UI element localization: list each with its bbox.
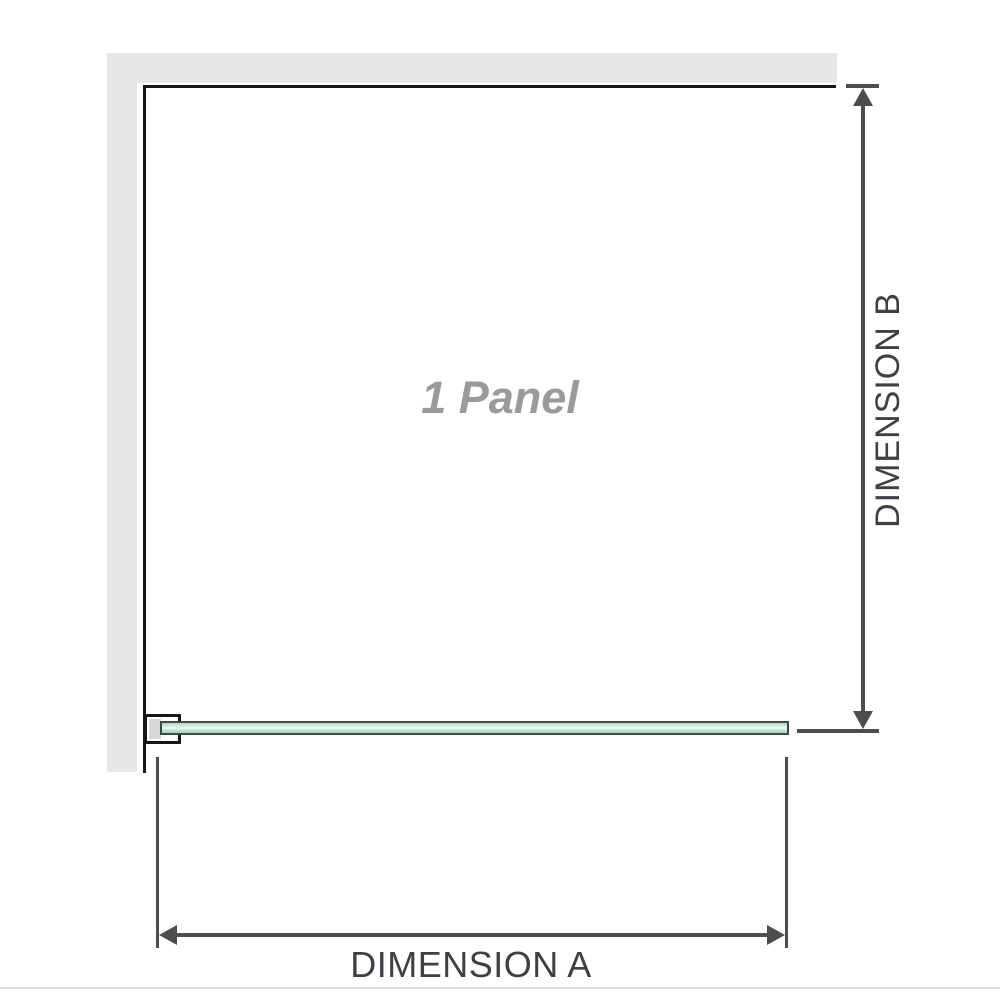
dimension-a-arrowhead-right-icon (767, 925, 785, 945)
wall-top-strip (107, 53, 837, 83)
dimension-b-bottom-tick (797, 729, 879, 733)
dimension-a-arrowhead-left-icon (159, 925, 177, 945)
dimension-a-label: DIMENSION A (321, 944, 621, 986)
dimension-a-left-extension-line (156, 757, 159, 948)
dimension-b-arrowhead-down-icon (853, 711, 873, 729)
dimension-a-line (170, 933, 774, 937)
dimension-b-line (861, 100, 865, 716)
glass-panel-bar (160, 721, 789, 735)
dimension-a-right-extension-line (785, 757, 788, 948)
dimension-b-label: DIMENSION B (870, 260, 906, 560)
wall-left-strip (107, 53, 137, 772)
panel-outline-top-line (143, 85, 836, 88)
panel-dimension-diagram: 1 Panel DIMENSION B DIMENSION A (0, 0, 1000, 1000)
panel-count-label: 1 Panel (350, 372, 650, 424)
bottom-divider-line (0, 987, 1000, 989)
panel-outline-left-line (143, 85, 146, 773)
dimension-b-arrowhead-up-icon (853, 88, 873, 106)
